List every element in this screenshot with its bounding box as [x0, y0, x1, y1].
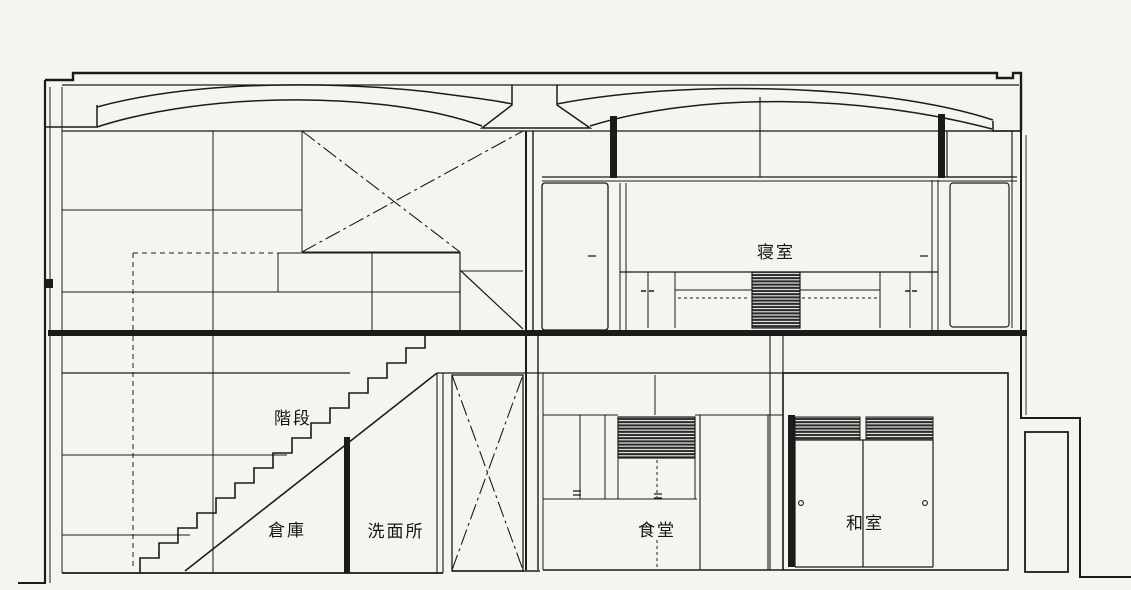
entrance-gate-panel	[1025, 432, 1068, 572]
room-label-washroom: 洗面所	[368, 522, 425, 542]
architectural-section-drawing: 寝室 階段 倉庫 洗面所 食堂 和室	[0, 0, 1131, 590]
bedroom-cabinet-right-dividers	[880, 272, 910, 328]
bedroom-right-door-panel	[950, 183, 1009, 327]
sliding-door-frame	[795, 440, 933, 567]
room-label-japanese-room: 和室	[846, 514, 884, 534]
section-drawing-canvas: 寝室 階段 倉庫 洗面所 食堂 和室	[0, 0, 1131, 590]
upper-xpanel-diagonal-2	[302, 131, 523, 252]
bedroom-left-wall-cut	[610, 116, 617, 178]
bedroom-left-wall-lines	[620, 183, 626, 330]
roof-parapet-outline	[45, 73, 1021, 131]
room-label-storage: 倉庫	[268, 521, 306, 541]
upper-brace-diagonal	[461, 271, 523, 329]
bedroom-cut-chest-hatch	[752, 272, 800, 328]
bedroom-right-header-block	[947, 131, 1012, 177]
bedroom-cabinet-left-dividers	[648, 272, 675, 328]
corridor-door-panel	[542, 183, 608, 330]
left-vault-intrados	[97, 100, 482, 127]
japanese-room-door-jamb	[788, 415, 795, 567]
roof-parapet-left-block	[45, 105, 97, 127]
washroom-right-wall	[437, 373, 443, 573]
left-vault-extrados	[97, 85, 512, 107]
sliding-door-pull-left	[799, 501, 804, 506]
floor-slab	[48, 330, 1027, 336]
right-exterior-wall	[1021, 131, 1131, 577]
roof	[45, 73, 1021, 131]
upper-cabinet-box	[278, 253, 460, 292]
room-label-bedroom: 寝室	[757, 242, 795, 263]
storage-washroom-divider-wall	[344, 437, 350, 573]
roof-parapet-right-block	[993, 121, 1021, 131]
japanese-room-outline	[783, 373, 1008, 570]
second-floor	[48, 97, 1027, 336]
sliding-door-pull-right	[923, 501, 928, 506]
dining-cut-cabinet-hatch	[618, 417, 695, 458]
japanese-room-transom-left	[795, 417, 860, 440]
center-column-capital	[482, 85, 590, 128]
bedroom-right-wall-cut	[938, 114, 945, 178]
dining-closet-walls	[700, 336, 783, 570]
right-vault-intrados	[590, 102, 992, 129]
room-label-dining: 食堂	[638, 521, 676, 541]
japanese-room-transom-right	[866, 417, 933, 440]
bedroom-right-wall-lines	[932, 180, 938, 330]
left-wall-section-mark	[46, 279, 53, 288]
upper-xpanel-diagonal-1	[302, 131, 460, 252]
room-label-stairs: 階段	[274, 409, 312, 429]
first-floor	[62, 333, 1008, 573]
right-wall-outer-line	[1021, 131, 1131, 577]
